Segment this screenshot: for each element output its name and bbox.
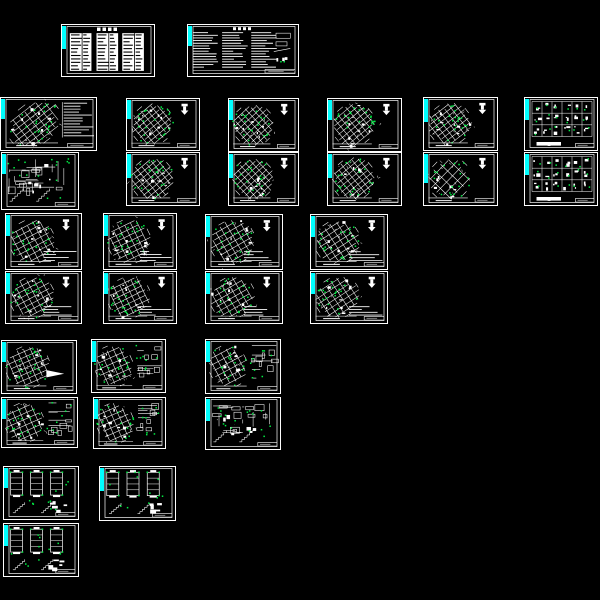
sheet-drawing-scatter	[2, 153, 78, 209]
sheet-accent-bar	[206, 341, 210, 362]
sheet-d6b-section-detail-grid-sheet-2[interactable]	[524, 152, 598, 206]
sheet-q2a-floor-plan-sheet-3[interactable]	[103, 213, 177, 270]
sheet-accent-bar	[206, 216, 210, 237]
sheet-drawing-plan	[328, 99, 401, 151]
sheet-drawing-plan	[6, 214, 81, 269]
sheet-drawing-plan	[6, 272, 81, 323]
sheet-accent-bar	[100, 468, 104, 491]
sheet-drawing-plan	[328, 153, 401, 205]
sheet-accent-bar	[188, 26, 192, 46]
sheet-drawing-plan	[2, 341, 76, 393]
sheet-p4b-framing-plan-sheet-6[interactable]	[327, 152, 402, 206]
sheet-drawing-plan-details	[2, 398, 77, 447]
sheet-accent-bar	[311, 273, 315, 294]
sheet-drawing-drawing-list	[62, 25, 154, 76]
sheet-toc-drawing-index-table-sheet[interactable]	[61, 24, 155, 77]
sheet-drawing-scatter	[206, 398, 280, 449]
sheet-accent-bar	[525, 154, 529, 175]
sheet-accent-bar	[206, 399, 210, 421]
sheet-drawing-plan	[229, 99, 298, 151]
sheet-q1b-floor-plan-sheet-2[interactable]	[5, 271, 82, 324]
sheet-accent-bar	[525, 99, 529, 120]
sheet-accent-bar	[4, 525, 8, 546]
sheet-drawing-plan	[424, 98, 497, 150]
cad-layout-canvas	[0, 0, 600, 600]
sheet-accent-bar	[6, 273, 10, 294]
sheet-p2b-framing-plan-sheet-2[interactable]	[126, 152, 200, 206]
sheet-drawing-general-notes	[188, 25, 298, 76]
sheet-notes-general-notes-sheet[interactable]	[187, 24, 299, 77]
sheet-accent-bar	[2, 342, 6, 362]
sheet-accent-bar	[229, 100, 233, 120]
sheet-accent-bar	[6, 215, 10, 236]
sheet-q2b-floor-plan-sheet-4[interactable]	[103, 271, 177, 324]
sheet-accent-bar	[2, 154, 6, 174]
sheet-drawing-detail-grid	[525, 98, 597, 150]
sheet-drawing-plan-details	[206, 340, 280, 393]
sheet-accent-bar	[311, 216, 315, 237]
sheet-r1b-plan-with-details-sheet-1[interactable]	[1, 397, 78, 448]
sheet-accent-bar	[92, 341, 96, 362]
sheet-p2a-framing-plan-sheet-1[interactable]	[126, 98, 200, 151]
sheet-drawing-plan	[127, 153, 199, 205]
sheet-drawing-column-details	[100, 467, 175, 520]
sheet-accent-bar	[424, 154, 428, 183]
sheet-p1a-structural-plan-with-notes-sheet[interactable]	[0, 97, 97, 151]
sheet-r1a-roof-plan-sheet[interactable]	[1, 340, 77, 394]
sheet-accent-bar	[229, 154, 233, 178]
sheet-drawing-column-details	[4, 467, 78, 519]
sheet-drawing-plan	[206, 272, 282, 323]
sheet-p5a-framing-plan-sheet-7[interactable]	[423, 97, 498, 151]
sheet-accent-bar	[94, 399, 98, 419]
sheet-s1a-column-elevation-details-sheet-1[interactable]	[3, 466, 79, 520]
sheet-r2a-plan-with-details-sheet-2[interactable]	[91, 339, 166, 393]
sheet-p4a-framing-plan-sheet-5[interactable]	[327, 98, 402, 152]
sheet-drawing-plan-details	[94, 398, 165, 448]
sheet-accent-bar	[206, 273, 210, 294]
sheet-drawing-detail-grid	[525, 153, 597, 205]
sheet-accent-bar	[1, 99, 5, 119]
sheet-drawing-plan	[424, 153, 497, 205]
sheet-accent-bar	[127, 100, 131, 119]
sheet-q3a-floor-plan-sheet-5[interactable]	[205, 214, 283, 270]
sheet-r2b-plan-with-details-sheet-3[interactable]	[93, 397, 166, 449]
sheet-r3b-misc-details-sheet[interactable]	[205, 397, 281, 450]
sheet-accent-bar	[104, 215, 108, 236]
sheet-s2a-column-elevation-details-sheet-3[interactable]	[99, 466, 176, 521]
sheet-drawing-plan	[311, 215, 387, 269]
sheet-p3b-framing-plan-sheet-4[interactable]	[228, 152, 299, 206]
sheet-p5b-framing-plan-sheet-8[interactable]	[423, 152, 498, 206]
sheet-accent-bar	[328, 100, 332, 120]
sheet-drawing-plan	[206, 215, 282, 269]
sheet-s1b-column-elevation-details-sheet-2[interactable]	[3, 523, 79, 577]
sheet-q4b-floor-plan-sheet-8[interactable]	[310, 271, 388, 324]
sheet-q4a-floor-plan-sheet-7[interactable]	[310, 214, 388, 270]
sheet-q3b-floor-plan-sheet-6[interactable]	[205, 271, 283, 324]
sheet-drawing-plan	[1, 98, 96, 150]
sheet-drawing-plan	[127, 99, 199, 150]
sheet-r3a-plan-with-details-sheet-4[interactable]	[205, 339, 281, 394]
sheet-q1a-floor-plan-sheet-1[interactable]	[5, 213, 82, 270]
sheet-accent-bar	[328, 154, 332, 178]
sheet-accent-bar	[4, 468, 8, 488]
sheet-accent-bar	[2, 399, 6, 419]
sheet-drawing-plan	[229, 153, 298, 205]
sheet-accent-bar	[104, 273, 108, 294]
sheet-drawing-plan	[311, 272, 387, 323]
sheet-accent-bar	[127, 154, 131, 178]
sheet-drawing-plan-details	[92, 340, 165, 392]
sheet-accent-bar	[62, 26, 66, 49]
sheet-accent-bar	[424, 99, 428, 122]
sheet-drawing-plan	[104, 214, 176, 269]
sheet-drawing-plan	[104, 272, 176, 323]
sheet-p1b-foundation-details-sheet[interactable]	[1, 152, 79, 210]
sheet-d6a-section-detail-grid-sheet-1[interactable]	[524, 97, 598, 151]
sheet-drawing-column-details	[4, 524, 78, 576]
sheet-p3a-framing-plan-sheet-3[interactable]	[228, 98, 299, 152]
